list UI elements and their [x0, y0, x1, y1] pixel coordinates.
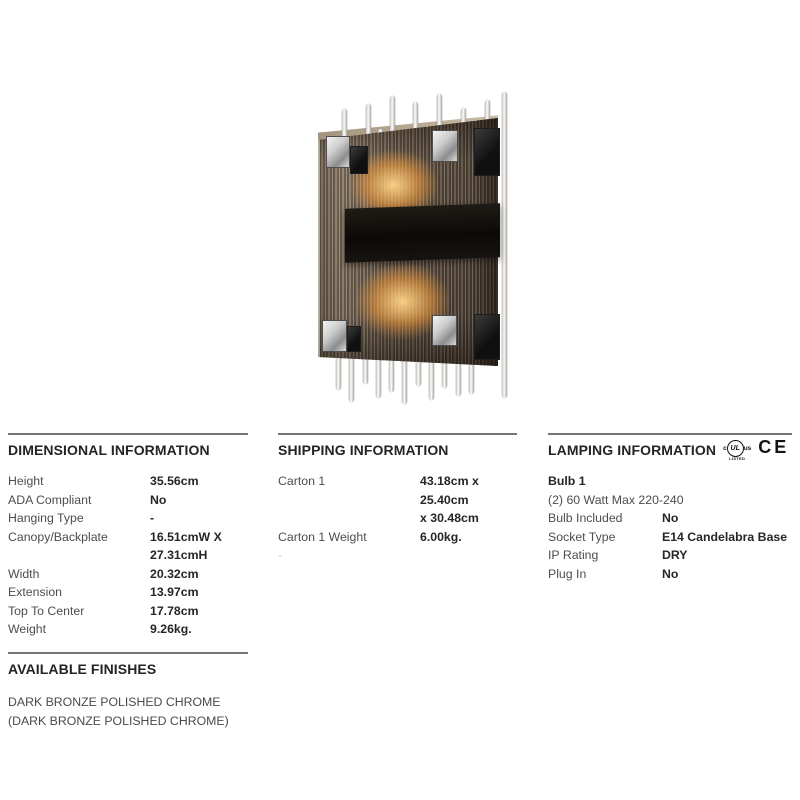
section-divider: [8, 652, 248, 654]
spec-row-weight: Weight 9.26kg.: [8, 620, 248, 639]
section-lamping: LAMPING INFORMATION c UL us LISTED CE Bu…: [548, 433, 794, 583]
dark-bracket: [347, 326, 361, 352]
spec-row-canopy: Canopy/Backplate 16.51cmW X 27.31cmH: [8, 528, 248, 565]
chrome-clip: [322, 320, 347, 352]
glass-left-rim: [318, 118, 320, 366]
section-divider: [278, 433, 517, 435]
spec-row-carton1: Carton 1 43.18cm x 25.40cm x 30.48cm: [278, 472, 530, 528]
dimensional-title: DIMENSIONAL INFORMATION: [8, 441, 248, 459]
section-shipping: SHIPPING INFORMATION Carton 1 43.18cm x …: [278, 433, 530, 565]
shipping-title: SHIPPING INFORMATION: [278, 441, 530, 459]
spec-sheet-page: DIMENSIONAL INFORMATION Height 35.56cm A…: [0, 0, 800, 800]
glass-rod: [336, 356, 341, 390]
spec-row-ghost: -: [278, 546, 530, 565]
dark-bracket: [350, 146, 368, 174]
lamping-title: LAMPING INFORMATION: [548, 441, 716, 459]
chrome-clip: [432, 315, 457, 346]
spec-row-carton1-weight: Carton 1 Weight 6.00kg.: [278, 528, 530, 547]
spec-row-ip-rating: IP Rating DRY: [548, 546, 794, 565]
center-black-band: [345, 203, 500, 262]
spec-row-ada: ADA Compliant No: [8, 491, 248, 510]
section-divider: [8, 433, 248, 435]
spec-row-socket-type: Socket Type E14 Candelabra Base: [548, 528, 794, 547]
glass-rod: [402, 356, 407, 404]
lamping-rows: Bulb 1 (2) 60 Watt Max 220-240 Bulb Incl…: [548, 472, 794, 583]
glass-rod: [363, 356, 368, 384]
bulb-heading: Bulb 1: [548, 472, 794, 491]
spec-row-width: Width 20.32cm: [8, 565, 248, 584]
finishes-title: AVAILABLE FINISHES: [8, 660, 248, 678]
dark-bracket: [474, 314, 500, 360]
bulb-description: (2) 60 Watt Max 220-240: [548, 491, 794, 510]
product-image: [290, 84, 520, 404]
spec-row-bulb-included: Bulb Included No: [548, 509, 794, 528]
spec-row-plug-in: Plug In No: [548, 565, 794, 584]
glass-rod: [376, 356, 381, 398]
section-dimensional: DIMENSIONAL INFORMATION Height 35.56cm A…: [8, 433, 248, 732]
finishes-text: DARK BRONZE POLISHED CHROME (DARK BRONZE…: [8, 693, 248, 732]
spec-row-extension: Extension 13.97cm: [8, 583, 248, 602]
glass-rod: [349, 356, 354, 402]
glass-rod: [389, 356, 394, 392]
cul-us-listed-icon: c UL us LISTED: [723, 440, 751, 457]
chrome-clip: [326, 136, 350, 168]
glass-rod: [502, 92, 507, 398]
spec-row-hanging-type: Hanging Type -: [8, 509, 248, 528]
spec-row-top-to-center: Top To Center 17.78cm: [8, 602, 248, 621]
spec-row-height: Height 35.56cm: [8, 472, 248, 491]
ce-mark-icon: CE: [758, 438, 789, 456]
dark-bracket: [474, 128, 500, 176]
dimensional-rows: Height 35.56cm ADA Compliant No Hanging …: [8, 472, 248, 639]
chrome-clip: [432, 130, 458, 162]
shipping-rows: Carton 1 43.18cm x 25.40cm x 30.48cm Car…: [278, 472, 530, 565]
